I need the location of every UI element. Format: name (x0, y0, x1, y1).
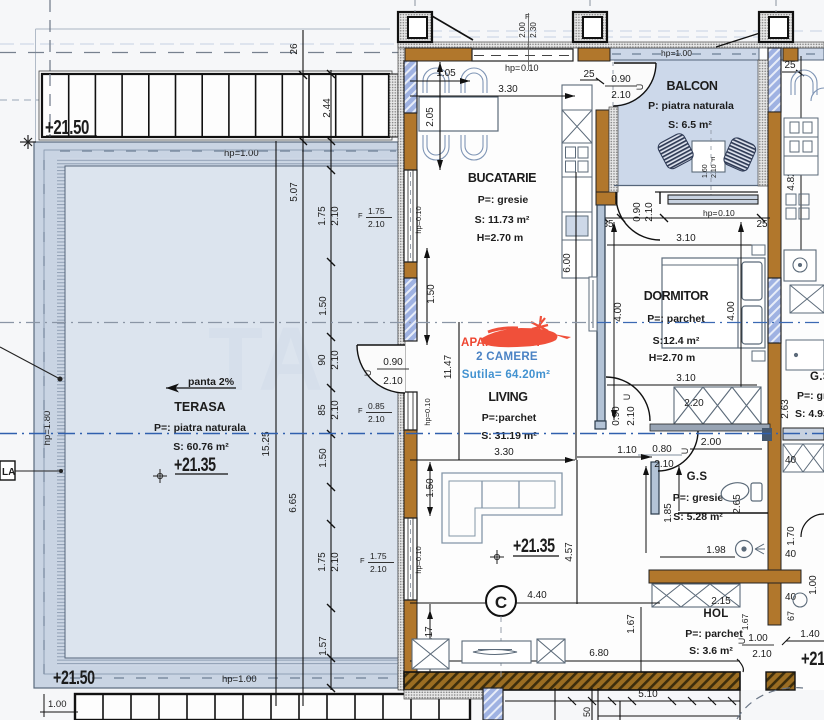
svg-text:4.57: 4.57 (564, 542, 575, 562)
svg-text:0.90: 0.90 (383, 357, 403, 368)
svg-text:hp= 0.10: hp= 0.10 (505, 63, 539, 73)
svg-text:1.57: 1.57 (318, 636, 329, 656)
svg-text:S: 60.76 m²: S: 60.76 m² (173, 441, 229, 453)
svg-text:+21.35: +21.35 (174, 454, 216, 475)
svg-text:hp= 0.10: hp= 0.10 (703, 208, 735, 218)
svg-text:90: 90 (317, 354, 328, 366)
svg-text:1.67: 1.67 (740, 613, 750, 630)
svg-text:4.40: 4.40 (527, 590, 547, 601)
svg-text:P=: gresie: P=: gresie (478, 194, 529, 206)
svg-text:1.50: 1.50 (318, 448, 329, 468)
svg-text:U: U (737, 638, 747, 645)
svg-text:C: C (495, 593, 507, 612)
svg-text:40: 40 (785, 455, 797, 466)
svg-text:1.50: 1.50 (318, 296, 329, 316)
svg-text:40: 40 (785, 549, 797, 560)
svg-text:panta 2%: panta 2% (188, 376, 235, 388)
svg-text:hp=0.10: hp=0.10 (423, 398, 432, 425)
svg-text:BUCATARIE: BUCATARIE (468, 171, 536, 185)
svg-text:25: 25 (784, 60, 796, 71)
svg-text:2.00: 2.00 (701, 436, 722, 448)
svg-text:+21.50: +21.50 (45, 116, 90, 139)
svg-text:P=: parchet: P=: parchet (647, 313, 705, 325)
svg-text:H=2.70 m: H=2.70 m (649, 352, 695, 364)
svg-text:U: U (635, 84, 645, 91)
svg-text:DORMITOR: DORMITOR (644, 289, 709, 303)
svg-text:2.10: 2.10 (330, 206, 341, 226)
svg-text:2.10: 2.10 (330, 400, 341, 420)
svg-text:F: F (358, 406, 363, 415)
svg-text:2.10: 2.10 (370, 564, 387, 574)
svg-text:G.S: G.S (810, 371, 824, 383)
svg-text:S: 11.73 m²: S: 11.73 m² (475, 214, 530, 226)
svg-text:BALCON: BALCON (666, 79, 717, 93)
svg-text:25: 25 (756, 219, 768, 230)
svg-text:11.47: 11.47 (443, 354, 454, 379)
svg-text:2.10: 2.10 (611, 90, 631, 101)
svg-text:TA: TA (208, 310, 325, 410)
svg-text:4.00: 4.00 (726, 301, 737, 321)
svg-text:2.10: 2.10 (752, 649, 772, 660)
svg-text:2.44: 2.44 (322, 98, 333, 118)
svg-text:1.98: 1.98 (706, 545, 726, 556)
svg-text:40: 40 (785, 592, 797, 603)
svg-text:2.30: 2.30 (529, 22, 538, 38)
svg-text:1.00: 1.00 (748, 633, 768, 644)
svg-text:2.65: 2.65 (732, 494, 743, 514)
svg-text:0.80: 0.80 (652, 444, 672, 455)
svg-text:1.75: 1.75 (317, 206, 328, 226)
svg-text:1.75: 1.75 (368, 206, 385, 216)
svg-text:3.30: 3.30 (494, 447, 514, 458)
svg-text:5.10: 5.10 (638, 689, 658, 700)
svg-text:2.10: 2.10 (368, 414, 385, 424)
svg-text:2.10: 2.10 (368, 219, 385, 229)
svg-text:2.05: 2.05 (425, 107, 436, 127)
svg-text:2.10: 2.10 (330, 552, 341, 572)
svg-text:hp=1.00: hp=1.00 (222, 674, 257, 685)
svg-text:3.30: 3.30 (498, 84, 518, 95)
svg-text:50: 50 (582, 707, 592, 717)
svg-text:F: F (711, 157, 715, 164)
svg-text:+21.: +21. (801, 648, 824, 669)
svg-text:15.25: 15.25 (261, 431, 272, 456)
svg-text:P=:parchet: P=:parchet (482, 412, 537, 424)
svg-text:1.60: 1.60 (702, 164, 709, 178)
svg-text:HOL: HOL (703, 608, 728, 620)
svg-text:TERASA: TERASA (174, 400, 225, 414)
svg-text:Sutila= 64.20m²: Sutila= 64.20m² (462, 369, 551, 381)
svg-text:1.67: 1.67 (626, 614, 637, 634)
svg-text:2.10: 2.10 (644, 202, 655, 222)
svg-text:2.10: 2.10 (383, 376, 403, 387)
svg-text:4.00: 4.00 (613, 302, 624, 322)
svg-text:hp=0.10: hp=0.10 (414, 206, 423, 233)
svg-text:+21.50: +21.50 (53, 667, 95, 688)
svg-text:1.40: 1.40 (800, 629, 820, 640)
svg-text:S: 31.19 m²: S: 31.19 m² (481, 430, 537, 442)
svg-text:5.07: 5.07 (289, 182, 300, 202)
svg-text:1.85: 1.85 (663, 503, 674, 523)
svg-text:U: U (680, 448, 690, 455)
svg-text:S:12.4 m²: S:12.4 m² (653, 335, 700, 347)
svg-text:1.10: 1.10 (617, 445, 637, 456)
svg-text:0.85: 0.85 (368, 401, 385, 411)
svg-text:2.15: 2.15 (711, 596, 731, 607)
svg-text:P=: gresie: P=: gresie (673, 492, 724, 504)
svg-text:LIVING: LIVING (488, 390, 527, 404)
svg-text:2.10: 2.10 (711, 164, 718, 178)
svg-text:2.63: 2.63 (780, 399, 791, 419)
svg-text:25: 25 (583, 69, 595, 80)
svg-text:0.90: 0.90 (611, 406, 622, 426)
svg-text:F: F (358, 211, 363, 220)
svg-text:P=: parchet: P=: parchet (685, 628, 743, 640)
svg-text:0.90: 0.90 (611, 74, 631, 85)
svg-text:2.10: 2.10 (654, 459, 674, 470)
svg-text:hp=0.10: hp=0.10 (414, 546, 423, 573)
svg-text:2.10: 2.10 (330, 350, 341, 370)
svg-text:3.10: 3.10 (676, 373, 696, 384)
svg-text:6.80: 6.80 (589, 648, 609, 659)
svg-text:0.90: 0.90 (632, 202, 643, 222)
svg-text:6.00: 6.00 (562, 253, 573, 273)
svg-text:F: F (525, 12, 530, 21)
svg-text:1.75: 1.75 (370, 551, 387, 561)
svg-text:U: U (363, 370, 373, 377)
svg-text:G.S: G.S (687, 471, 708, 483)
svg-text:6.65: 6.65 (288, 493, 299, 513)
svg-text:1.00: 1.00 (808, 575, 819, 595)
svg-text:hp=1.00: hp=1.00 (661, 48, 692, 58)
svg-text:26: 26 (289, 43, 300, 55)
svg-text:1.50: 1.50 (426, 284, 437, 304)
svg-text:3.10: 3.10 (676, 233, 696, 244)
svg-text:S: 6.5 m²: S: 6.5 m² (668, 119, 712, 131)
svg-text:2.20: 2.20 (684, 398, 704, 409)
svg-text:P=: piatra naturala: P=: piatra naturala (154, 422, 246, 434)
svg-text:85: 85 (317, 404, 328, 416)
svg-text:U: U (622, 394, 632, 401)
svg-text:S: 3.6 m²: S: 3.6 m² (689, 645, 733, 657)
svg-text:1.00: 1.00 (48, 699, 67, 710)
svg-text:F: F (360, 556, 365, 565)
svg-text:67: 67 (786, 611, 796, 621)
svg-text:S: 4.93: S: 4.93 (795, 408, 824, 420)
svg-text:2.00: 2.00 (518, 22, 527, 38)
svg-text:LA: LA (2, 467, 15, 478)
svg-text:1.70: 1.70 (786, 526, 797, 546)
svg-text:2.10: 2.10 (626, 406, 637, 426)
svg-text:1.75: 1.75 (317, 552, 328, 572)
svg-text:P=: gre: P=: gre (797, 390, 824, 402)
svg-text:P: piatra naturala: P: piatra naturala (648, 100, 734, 112)
svg-text:2 CAMERE: 2 CAMERE (476, 351, 538, 363)
svg-text:+21.35: +21.35 (513, 535, 555, 556)
svg-text:H=2.70 m: H=2.70 m (477, 232, 523, 244)
